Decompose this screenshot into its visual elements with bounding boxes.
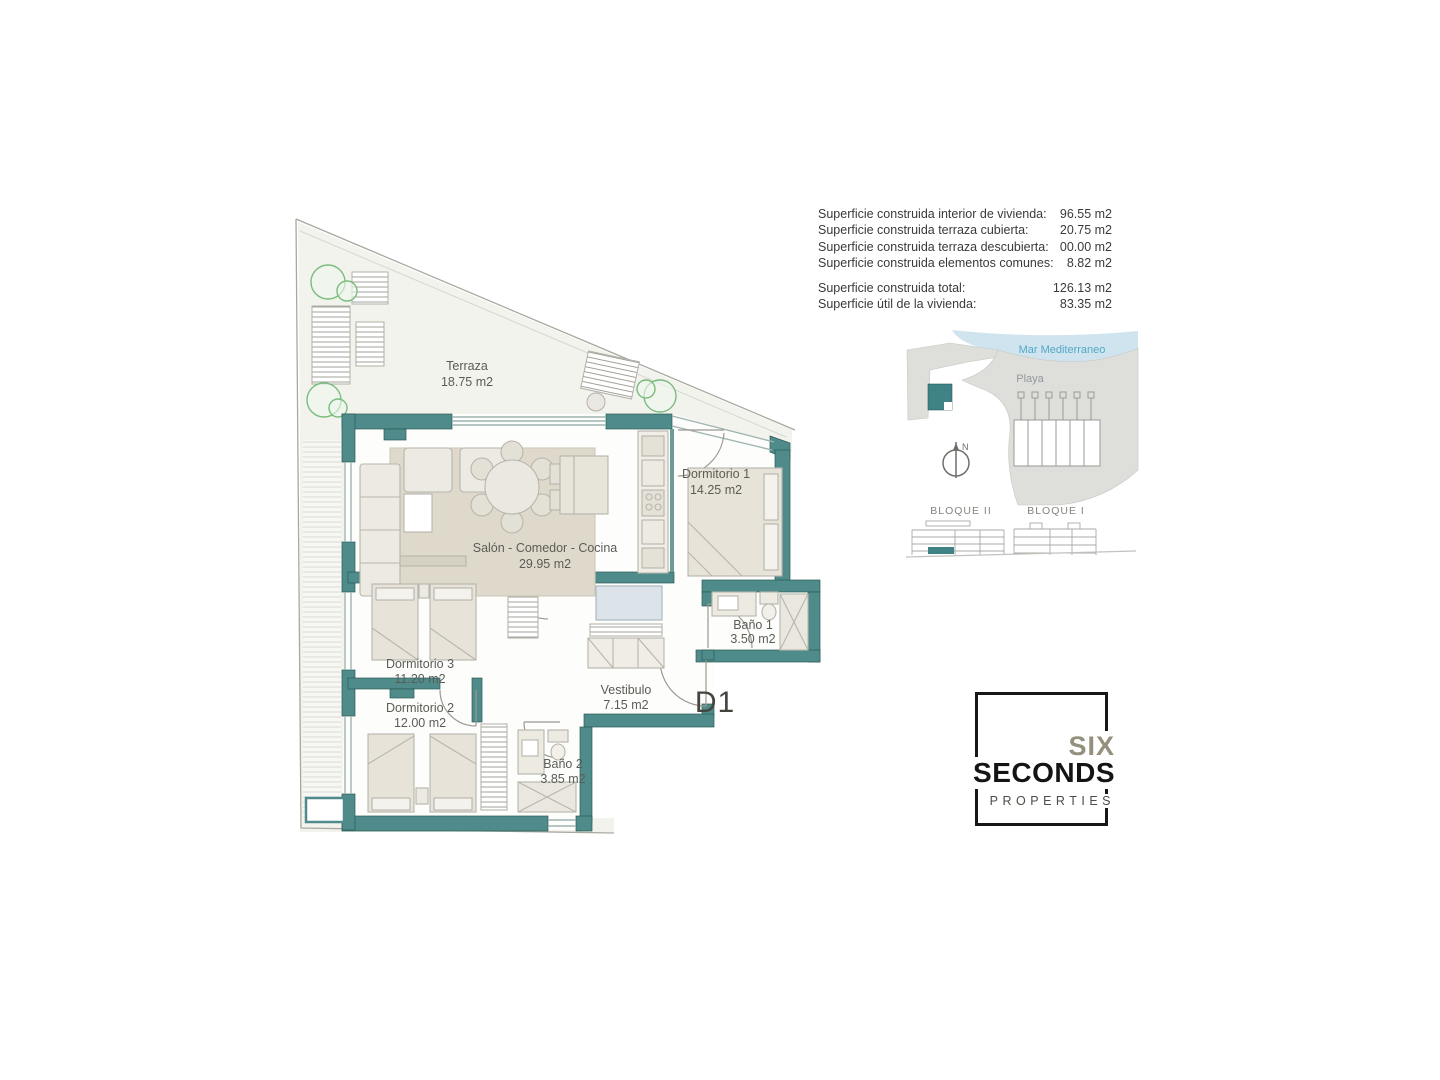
svg-text:Salón - Comedor - Cocina: Salón - Comedor - Cocina xyxy=(473,541,618,555)
bloque-i-label: BLOQUE I xyxy=(1027,505,1085,517)
floorplan-canvas: Terraza 18.75 m2 Salón - Comedor - Cocin… xyxy=(0,0,1440,1080)
svg-text:11.20 m2: 11.20 m2 xyxy=(394,672,445,686)
surface-table: Superficie construida interior de vivien… xyxy=(818,206,1112,313)
svg-text:Baño 2: Baño 2 xyxy=(543,757,583,771)
beach-label: Playa xyxy=(1016,373,1044,385)
svg-text:Baño 1: Baño 1 xyxy=(733,618,773,632)
bloque-ii-elevation xyxy=(912,521,1004,555)
row-label: Superficie construida elementos comunes: xyxy=(818,255,1054,271)
row-value: 96.55 m2 xyxy=(1060,206,1112,222)
row-label: Superficie construida total: xyxy=(818,280,965,296)
svg-text:Vestibulo: Vestibulo xyxy=(601,683,652,697)
svg-text:3.85 m2: 3.85 m2 xyxy=(540,772,585,786)
table-row: Superficie construida elementos comunes:… xyxy=(818,255,1112,271)
row-label: Superficie construida terraza cubierta: xyxy=(818,222,1029,238)
svg-text:Terraza: Terraza xyxy=(446,359,488,373)
svg-text:14.25 m2: 14.25 m2 xyxy=(690,483,742,497)
table-row-total: Superficie útil de la vivienda: 83.35 m2 xyxy=(818,296,1112,312)
unit-location-marker xyxy=(928,384,952,410)
svg-text:Dormitorio 1: Dormitorio 1 xyxy=(682,467,750,481)
company-logo: SIX SECONDS PROPERTIES xyxy=(975,692,1108,826)
row-label: Superficie construida interior de vivien… xyxy=(818,206,1047,222)
bloque-i-elevation xyxy=(1014,523,1096,555)
svg-text:Dormitorio 2: Dormitorio 2 xyxy=(386,701,454,715)
table-row: Superficie construida terraza descubiert… xyxy=(818,239,1112,255)
row-value: 8.82 m2 xyxy=(1067,255,1112,271)
unit-label: D1 xyxy=(695,686,735,719)
row-value: 00.00 m2 xyxy=(1060,239,1112,255)
room-label-bano-2: Baño 2 3.85 m2 xyxy=(540,757,585,786)
compass-n-label: N xyxy=(962,442,969,452)
svg-text:12.00 m2: 12.00 m2 xyxy=(394,716,446,730)
logo-word-seconds: SECONDS xyxy=(967,757,1115,789)
sea-label: Mar Mediterraneo xyxy=(1019,344,1106,356)
room-label-dormitorio-3: Dormitorio 3 11.20 m2 xyxy=(386,657,454,686)
wall-notch xyxy=(306,798,344,822)
svg-text:Dormitorio 3: Dormitorio 3 xyxy=(386,657,454,671)
row-label: Superficie útil de la vivienda: xyxy=(818,296,976,312)
svg-text:29.95 m2: 29.95 m2 xyxy=(519,557,571,571)
row-value: 126.13 m2 xyxy=(1053,280,1112,296)
row-label: Superficie construida terraza descubiert… xyxy=(818,239,1049,255)
svg-text:7.15 m2: 7.15 m2 xyxy=(603,698,648,712)
logo-word-properties: PROPERTIES xyxy=(984,794,1115,808)
table-row: Superficie construida interior de vivien… xyxy=(818,206,1112,222)
floorplan-page: Terraza 18.75 m2 Salón - Comedor - Cocin… xyxy=(0,0,1440,1080)
table-row-total: Superficie construida total: 126.13 m2 xyxy=(818,280,1112,296)
room-label-vestibulo: Vestibulo 7.15 m2 xyxy=(601,683,652,712)
row-value: 83.35 m2 xyxy=(1060,296,1112,312)
site-map: N Mar Mediterraneo Playa BLOQUE II BLOQU… xyxy=(906,330,1138,557)
bloque-ii-label: BLOQUE II xyxy=(930,505,992,517)
svg-text:3.50 m2: 3.50 m2 xyxy=(730,632,775,646)
svg-text:18.75 m2: 18.75 m2 xyxy=(441,375,493,389)
room-label-dormitorio-2: Dormitorio 2 12.00 m2 xyxy=(386,701,454,730)
row-value: 20.75 m2 xyxy=(1060,222,1112,238)
table-row: Superficie construida terraza cubierta: … xyxy=(818,222,1112,238)
room-label-bano-1: Baño 1 3.50 m2 xyxy=(730,618,775,646)
